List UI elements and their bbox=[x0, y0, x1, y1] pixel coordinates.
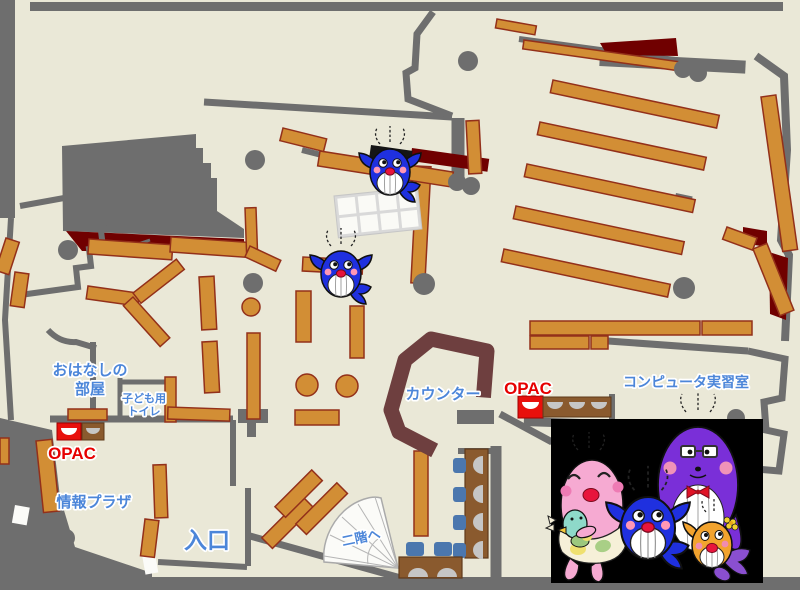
label-opac-right: OPAC bbox=[504, 379, 552, 398]
opac-station-left bbox=[57, 423, 104, 440]
door-gap bbox=[12, 505, 30, 525]
label-storytelling-room-line1: おはなしの bbox=[52, 362, 127, 379]
label-storytelling-room-line2: 部屋 bbox=[75, 380, 105, 398]
whale-family-photo bbox=[546, 392, 763, 584]
label-opac-left: OPAC bbox=[48, 444, 96, 463]
library-floor-map: おはなしの 部屋 子ども用 トイレ OPAC 情報プラザ 入口 カウンター OP… bbox=[0, 0, 800, 590]
label-kids-toilet-line1: 子ども用 bbox=[122, 392, 166, 405]
label-counter: カウンター bbox=[405, 386, 480, 403]
label-kids-toilet-line2: トイレ bbox=[128, 405, 161, 418]
label-computer-room: コンピュータ実習室 bbox=[623, 374, 749, 390]
opac-station-right bbox=[518, 396, 611, 418]
label-info-plaza: 情報プラザ bbox=[56, 493, 131, 511]
label-entrance: 入口 bbox=[184, 527, 230, 553]
